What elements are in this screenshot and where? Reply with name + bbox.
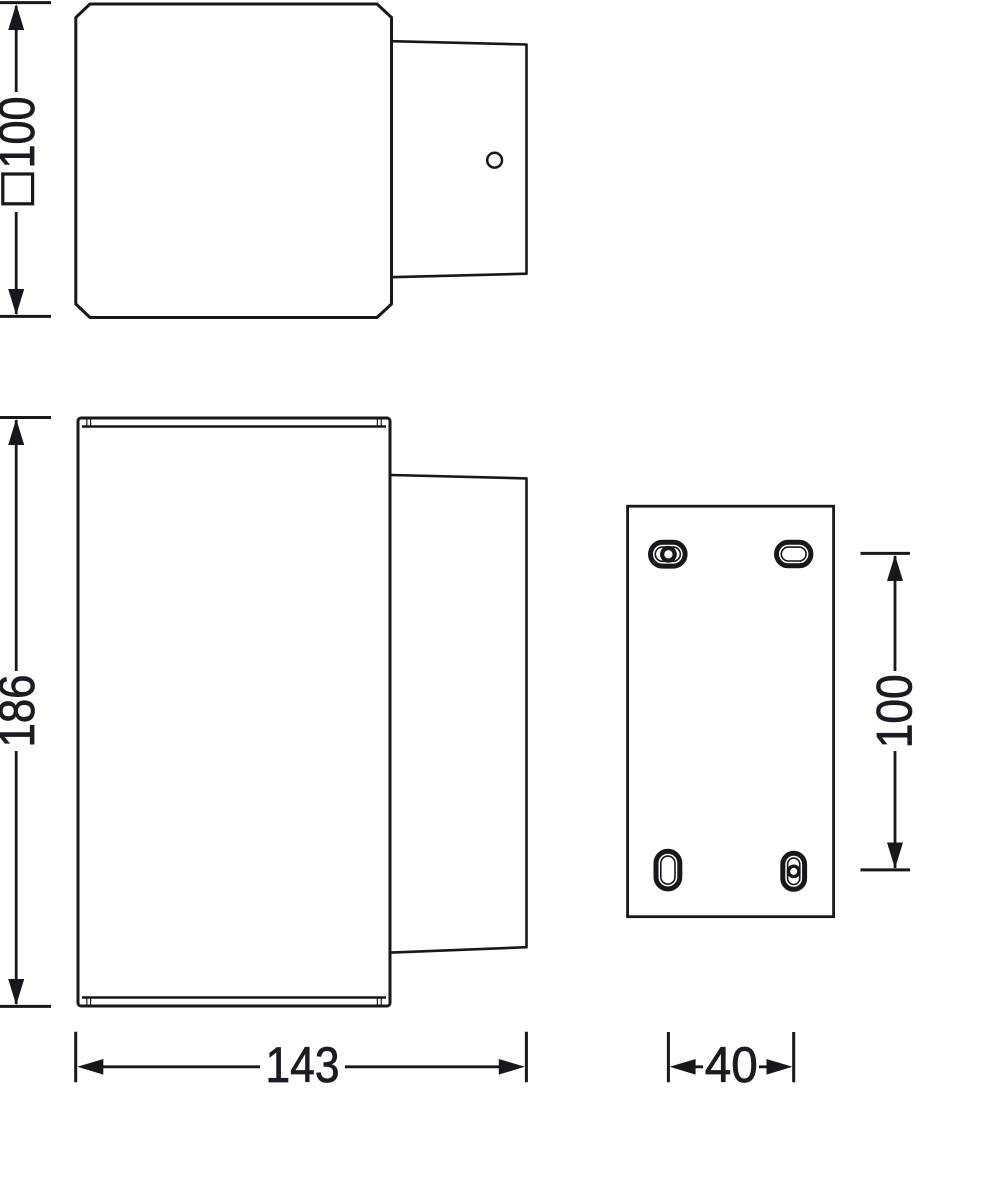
svg-text:186: 186 bbox=[0, 675, 45, 748]
svg-text:40: 40 bbox=[705, 1037, 758, 1093]
svg-text:100: 100 bbox=[0, 97, 45, 169]
svg-text:143: 143 bbox=[266, 1037, 340, 1093]
svg-text:100: 100 bbox=[867, 674, 923, 748]
